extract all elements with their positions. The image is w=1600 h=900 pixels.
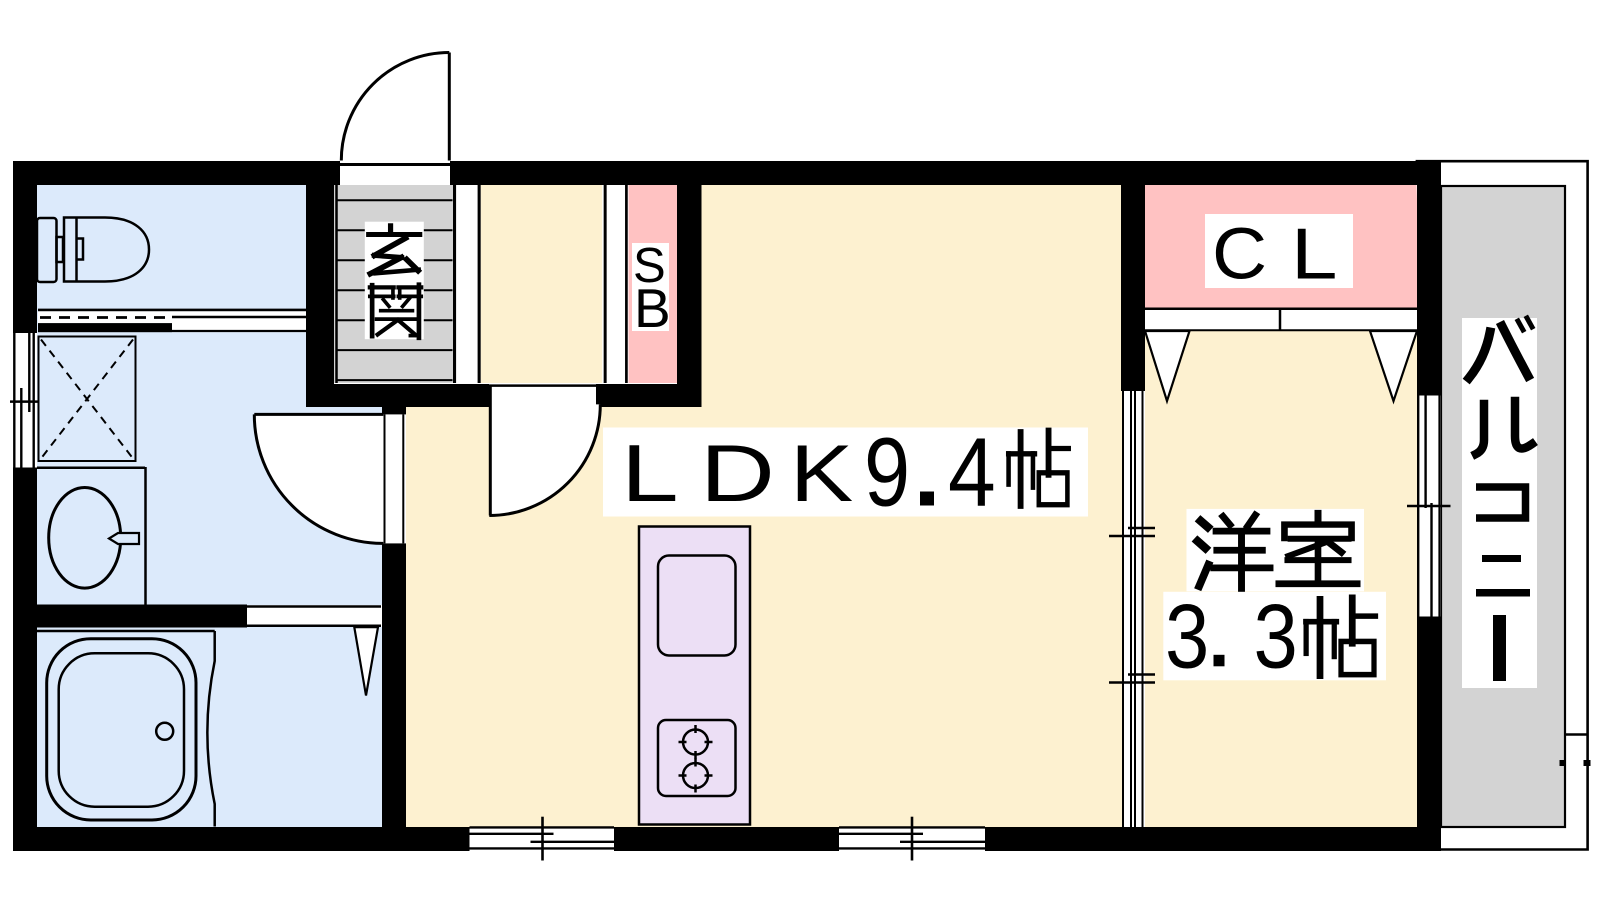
svg-text:K: K — [790, 427, 853, 518]
svg-text:3: 3 — [1254, 587, 1298, 688]
svg-text:3: 3 — [1165, 587, 1209, 688]
svg-text:B: B — [634, 277, 671, 339]
svg-text:4: 4 — [948, 418, 996, 526]
svg-text:D: D — [700, 428, 775, 519]
svg-text:9: 9 — [864, 418, 910, 527]
svg-text:C: C — [1212, 213, 1267, 294]
svg-text:L: L — [1291, 213, 1337, 294]
svg-text:L: L — [621, 428, 679, 519]
